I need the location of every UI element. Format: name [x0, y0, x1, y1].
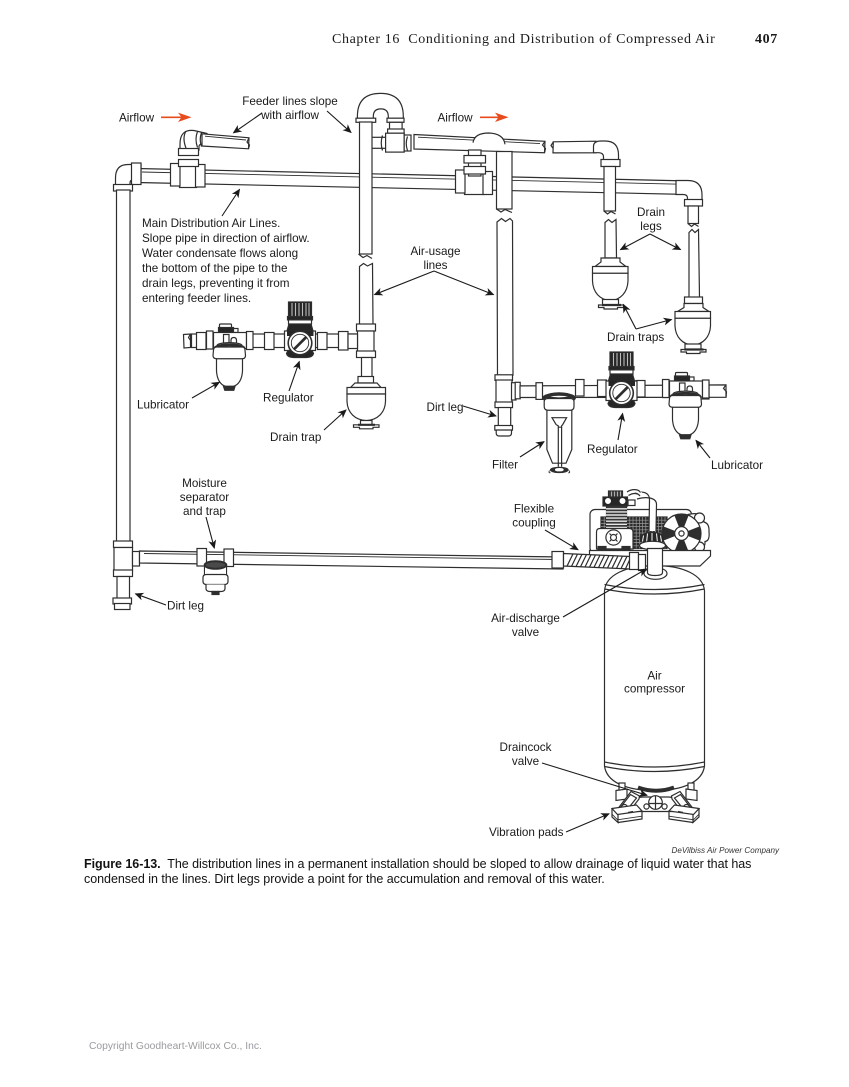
svg-text:drain legs, preventing it from: drain legs, preventing it from [142, 277, 289, 290]
svg-text:Air: Air [647, 670, 661, 683]
svg-text:Air-discharge: Air-discharge [491, 612, 560, 625]
svg-text:with airflow: with airflow [260, 109, 319, 122]
svg-text:Dirt leg: Dirt leg [167, 600, 204, 613]
svg-text:Drain trap: Drain trap [270, 431, 322, 444]
svg-text:Airflow: Airflow [438, 112, 474, 125]
svg-text:Water condensate flows along: Water condensate flows along [142, 247, 298, 260]
svg-text:Feeder lines slope: Feeder lines slope [242, 95, 338, 108]
svg-text:Flexible: Flexible [514, 503, 554, 516]
svg-text:Regulator: Regulator [587, 443, 638, 456]
svg-text:Lubricator: Lubricator [711, 459, 763, 472]
svg-text:separator: separator [180, 491, 229, 504]
svg-text:valve: valve [512, 755, 539, 768]
svg-text:Dirt leg: Dirt leg [427, 401, 464, 414]
svg-text:Moisture: Moisture [182, 477, 227, 490]
svg-text:Main Distribution Air Lines.: Main Distribution Air Lines. [142, 217, 280, 230]
svg-text:Slope pipe in direction of air: Slope pipe in direction of airflow. [142, 232, 310, 245]
svg-text:entering feeder lines.: entering feeder lines. [142, 292, 251, 305]
svg-text:Lubricator: Lubricator [137, 399, 189, 412]
svg-text:Drain: Drain [637, 206, 665, 219]
svg-text:legs: legs [640, 220, 662, 233]
svg-text:and trap: and trap [183, 505, 226, 518]
svg-text:Vibration pads: Vibration pads [489, 826, 564, 839]
svg-text:valve: valve [512, 626, 539, 639]
svg-text:Drain traps: Drain traps [607, 331, 664, 344]
svg-text:lines: lines [423, 259, 447, 272]
svg-text:Filter: Filter [492, 459, 518, 472]
svg-text:DeVilbiss Air Power Company: DeVilbiss Air Power Company [671, 846, 779, 855]
svg-text:compressor: compressor [624, 683, 685, 696]
svg-text:coupling: coupling [512, 517, 556, 530]
svg-text:Airflow: Airflow [119, 112, 155, 125]
svg-text:the bottom of the pipe to the: the bottom of the pipe to the [142, 262, 288, 275]
svg-text:Air-usage: Air-usage [410, 245, 460, 258]
svg-text:Draincock: Draincock [500, 741, 552, 754]
svg-text:Regulator: Regulator [263, 392, 314, 405]
